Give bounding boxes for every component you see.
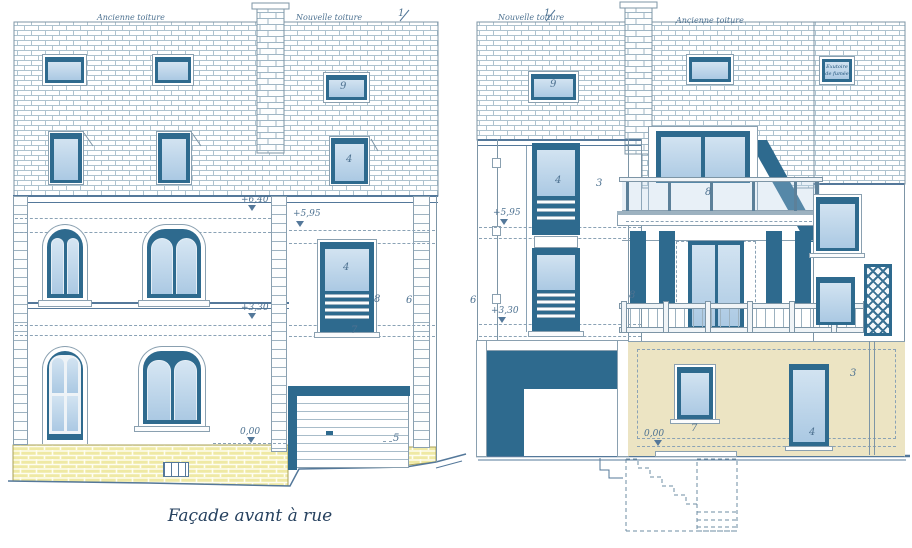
basement-grille [163, 462, 189, 477]
balcony-door-glass [661, 137, 701, 181]
railing-bar [537, 200, 575, 204]
skylight [152, 54, 194, 86]
dormer-frame [50, 133, 82, 183]
callout-leader [383, 441, 392, 442]
door-lite [67, 396, 79, 431]
balustrade-post [705, 301, 711, 333]
joint-mark [492, 158, 501, 168]
garage-handle [326, 431, 333, 435]
callout-dormer: 4 [346, 155, 352, 165]
right-roof-right [814, 22, 905, 184]
window-pane [174, 360, 198, 420]
railing-bar [537, 300, 575, 304]
upper-right-window-glass [820, 204, 855, 248]
callout-annex-door: 4 [343, 263, 349, 273]
railing-post [668, 182, 671, 211]
window-pane [151, 238, 173, 294]
arched-window [42, 224, 88, 302]
railing-bar [325, 308, 369, 312]
skylight-frame [689, 57, 731, 82]
label-old-roof: Ancienne toiture [97, 14, 165, 22]
level-arrow [296, 221, 304, 231]
drawing-caption: Façade avant à rue [150, 508, 350, 525]
callout-sidewall: 6 [470, 296, 476, 306]
callout-skylight: 9 [550, 80, 556, 90]
callout-wall: 3 [596, 179, 602, 189]
level-ground: 0,00 [240, 428, 260, 437]
callout-wall-ground: 3 [850, 369, 856, 379]
callout-skylight: 9 [340, 82, 346, 92]
garage-beam [288, 386, 410, 396]
door-sill [785, 446, 833, 451]
balcony-glass-railing [622, 182, 820, 211]
ground-tick-left [436, 461, 462, 468]
label-new-roof: Nouvelle toiture [296, 14, 362, 22]
left-chimney [257, 3, 284, 153]
window-pane [176, 238, 198, 294]
level-dash [15, 335, 271, 336]
level-eave: +6,40 [241, 196, 269, 205]
eave-line [814, 183, 905, 185]
tall-window-lower-glass [537, 255, 575, 290]
railing-bar [537, 208, 575, 212]
skylight-glass [329, 80, 364, 97]
window-sill [134, 426, 210, 432]
railing-post [752, 182, 755, 211]
basement-stairs-treads [697, 512, 737, 527]
callout-door4: 4 [809, 428, 815, 438]
dimension-line [526, 146, 527, 332]
eave-line [477, 139, 642, 141]
level-dash [15, 218, 271, 219]
arched-window-ground [138, 346, 206, 428]
window-pane [67, 238, 80, 294]
level-arrow [498, 317, 506, 327]
label-old-roof: Ancienne toiture [676, 17, 744, 25]
front-door-panel [49, 355, 81, 434]
stone-base-left [13, 445, 288, 486]
skylight-glass [158, 62, 188, 80]
level-floor: +3,30 [241, 304, 269, 313]
garage-lintel [476, 340, 629, 351]
garage-jamb [288, 386, 297, 470]
level-arrow [248, 205, 256, 215]
window-sill [38, 300, 92, 307]
level-upper: +5,95 [493, 209, 521, 218]
dormer-window [48, 131, 84, 185]
downpipe [869, 341, 870, 455]
level-arrow [654, 440, 662, 450]
callout-window7: 7 [691, 424, 697, 434]
railing-bar [537, 307, 575, 311]
balustrade-post [663, 301, 669, 333]
railing-bar [325, 301, 369, 305]
facade-elevation-drawing: Ancienne toiture Nouvelle toiture 1 9 4 … [0, 0, 912, 548]
level-floor: +3,30 [491, 307, 519, 316]
lower-right-window-glass [820, 283, 851, 322]
eave-line-2 [13, 202, 438, 203]
pillar [659, 231, 675, 305]
pillar [795, 231, 811, 305]
window-sill [528, 331, 584, 337]
basement-stairs-steps [626, 459, 697, 504]
garage-opening [524, 389, 617, 456]
window-sill [809, 253, 865, 258]
railing-bar [325, 315, 369, 319]
smoke-vent-text-2: de fumée [820, 71, 854, 77]
door-lite [52, 358, 64, 393]
callout-garage: 5 [393, 434, 399, 444]
front-door [42, 346, 88, 444]
label-new-roof: Nouvelle toiture [498, 14, 564, 22]
skylight [686, 54, 734, 85]
level-dash [637, 446, 896, 447]
skylight-frame [45, 57, 84, 83]
garage-column [476, 340, 487, 457]
pillar [766, 231, 782, 305]
ground-window-glass [681, 373, 709, 415]
roof-ref-number: 1 [544, 9, 550, 19]
arched-frame [47, 229, 83, 298]
level-ground: 0,00 [644, 430, 664, 439]
eave-line [13, 195, 438, 197]
callout-sidewall: 6 [406, 296, 412, 306]
quoin-right [413, 196, 430, 448]
skylight [42, 54, 87, 86]
dormer-frame [158, 133, 190, 183]
balcony-door-glass [705, 137, 745, 181]
callout-railing: 8 [374, 295, 380, 305]
slab-hidden-edge [626, 221, 812, 222]
front-door-leaf [47, 351, 83, 440]
level-dash [289, 230, 435, 231]
door-lite [67, 358, 79, 393]
entry-step [655, 451, 737, 457]
skylight-glass [692, 62, 728, 79]
callout-window: 4 [555, 176, 561, 186]
level-arrow [247, 437, 255, 447]
trellis [864, 264, 892, 336]
railing-post [626, 182, 629, 211]
railing-bar [537, 216, 575, 220]
callout-railing: 8 [629, 291, 635, 301]
balustrade-post [621, 301, 627, 333]
tall-window-upper-glass [537, 150, 575, 196]
level-arrow [500, 219, 508, 229]
ground-step-notch [600, 458, 623, 478]
smoke-vent-text-1: Exutoire [820, 64, 854, 70]
arched-frame [147, 229, 201, 298]
skylight [323, 72, 370, 103]
callout-sill: 7 [351, 326, 357, 336]
skylight-frame [326, 75, 367, 100]
basement-stairs-landing [697, 459, 737, 531]
skylight-frame [155, 57, 191, 83]
balustrade-post [789, 301, 795, 333]
smoke-vent: Exutoirede fumée [819, 56, 855, 85]
left-chimney-cap [252, 3, 289, 9]
quoin-mid [271, 196, 287, 452]
annex-right-edge [436, 196, 437, 462]
level-arrow [248, 313, 256, 323]
railing-bar [537, 314, 575, 318]
railing-bar [537, 293, 575, 297]
window-pane [51, 238, 64, 294]
roof-ref-number: 1 [398, 9, 404, 19]
door-lite [52, 396, 64, 431]
arched-frame [143, 351, 201, 424]
window-pane [147, 360, 171, 420]
dormer-glass [54, 139, 78, 180]
callout-balcony: 8 [705, 188, 711, 198]
downpipe [874, 341, 875, 455]
balustrade-post [747, 301, 753, 333]
transom-panel [534, 236, 578, 248]
annex-door-sill [314, 332, 380, 338]
right-chimney-cap [620, 2, 657, 8]
garage-door [297, 396, 409, 468]
dormer-window [156, 131, 192, 185]
railing-bar [325, 294, 369, 298]
level-annex: +5,95 [293, 210, 321, 219]
balcony-slab-edge [617, 211, 821, 215]
skylight-glass [48, 62, 81, 80]
dormer-glass [162, 139, 186, 180]
quoin-left [13, 196, 28, 445]
joint-mark [492, 294, 501, 304]
level-dash [15, 325, 271, 326]
arched-window [142, 224, 206, 302]
railing-post [794, 182, 797, 211]
window-sill [138, 300, 210, 307]
